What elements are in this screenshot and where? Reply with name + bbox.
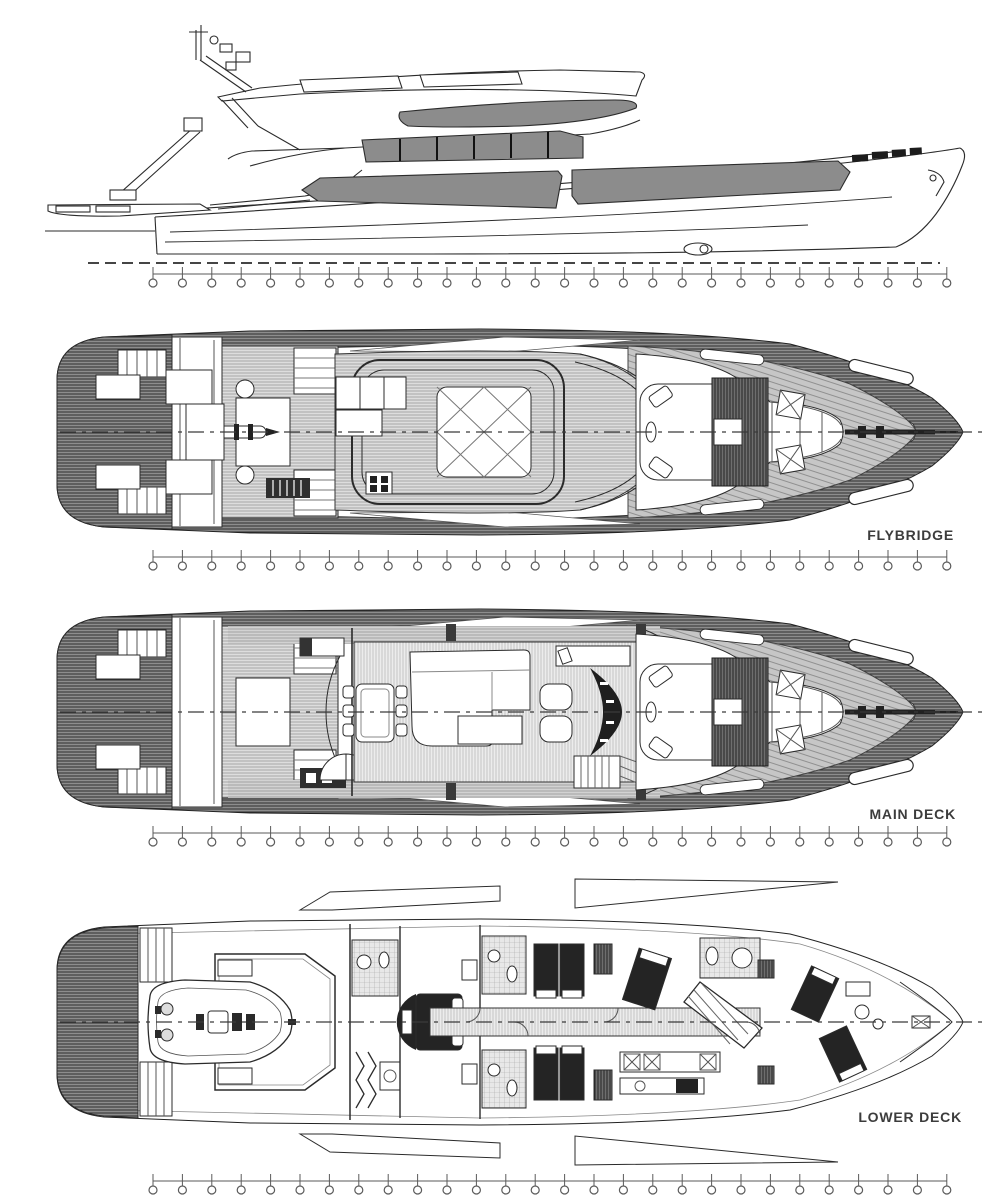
flybridge-label: FLYBRIDGE (867, 527, 954, 543)
ga-drawing (0, 0, 998, 1200)
station-ruler-lower-deck (149, 1174, 951, 1194)
station-ruler-profile (149, 267, 951, 287)
profile-view (45, 25, 965, 263)
main-deck-plan-view (57, 609, 985, 815)
main-deck-label: MAIN DECK (869, 806, 956, 822)
station-ruler-main-deck (149, 826, 951, 846)
drawing-sheet: FLYBRIDGE MAIN DECK LOWER DECK (0, 0, 998, 1200)
lower-deck-label: LOWER DECK (858, 1109, 962, 1125)
station-ruler-flybridge (149, 550, 951, 570)
flybridge-plan-view (57, 329, 985, 535)
lower-deck-plan-view (57, 879, 985, 1165)
